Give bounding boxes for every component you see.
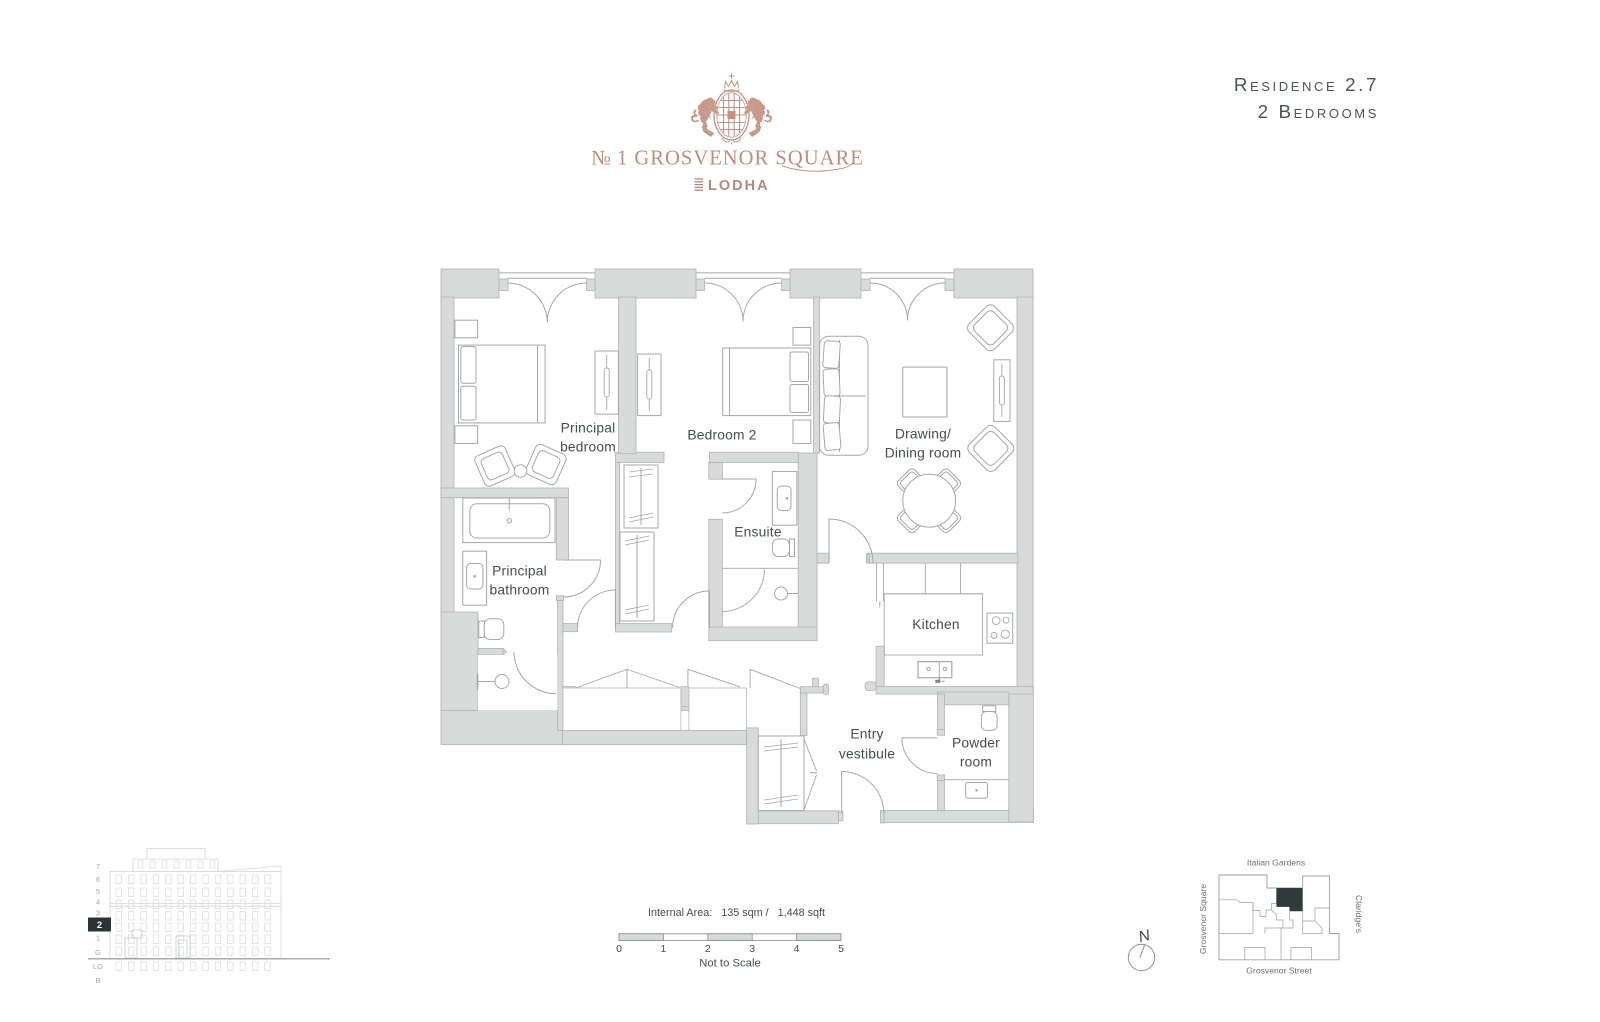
svg-text:2: 2	[97, 920, 102, 931]
svg-text:Ensuite: Ensuite	[734, 525, 782, 540]
svg-text:vestibule: vestibule	[839, 747, 895, 762]
svg-text:5: 5	[96, 887, 100, 896]
svg-text:3: 3	[749, 943, 755, 955]
svg-text:6: 6	[96, 875, 100, 884]
svg-text:G: G	[95, 948, 101, 957]
svg-text:Principal: Principal	[492, 564, 547, 579]
svg-text:Claridge's: Claridge's	[1354, 895, 1364, 933]
svg-text:B: B	[95, 976, 100, 985]
svg-text:Dining room: Dining room	[885, 446, 962, 461]
svg-text:room: room	[960, 755, 992, 770]
svg-text:3: 3	[96, 909, 100, 918]
svg-text:7: 7	[96, 862, 100, 871]
svg-text:2: 2	[705, 943, 711, 955]
svg-text:Internal Area: 135 sqm / 1: Internal Area: 135 sqm / 1,448 sqft	[648, 907, 825, 919]
svg-text:Bedroom 2: Bedroom 2	[687, 428, 756, 443]
svg-text:4: 4	[96, 898, 100, 907]
svg-text:Powder: Powder	[952, 736, 1000, 751]
svg-text:Residence 2.7: Residence 2.7	[1234, 74, 1379, 95]
svg-text:Drawing/: Drawing/	[895, 427, 951, 442]
svg-text:bedroom: bedroom	[560, 440, 616, 455]
svg-text:1: 1	[660, 943, 666, 955]
svg-text:Grosvenor Square: Grosvenor Square	[1198, 884, 1208, 954]
svg-text:0: 0	[616, 943, 622, 955]
svg-text:LODHA: LODHA	[708, 178, 770, 194]
svg-text:Entry: Entry	[850, 727, 883, 742]
svg-text:Kitchen: Kitchen	[912, 617, 959, 632]
svg-text:Principal: Principal	[561, 421, 616, 436]
svg-text:4: 4	[794, 943, 800, 955]
svg-text:2 Bedrooms: 2 Bedrooms	[1258, 101, 1379, 122]
svg-text:Italian Gardens: Italian Gardens	[1247, 858, 1305, 868]
svg-text:bathroom: bathroom	[490, 583, 550, 598]
svg-text:1: 1	[96, 934, 100, 943]
svg-text:Grosvenor Street: Grosvenor Street	[1246, 966, 1312, 976]
svg-text:№ 1 GROSVENOR SQUARE: № 1 GROSVENOR SQUARE	[591, 148, 864, 170]
svg-text:Not to Scale: Not to Scale	[699, 958, 761, 970]
svg-text:5: 5	[838, 943, 844, 955]
svg-text:LG: LG	[93, 962, 103, 971]
